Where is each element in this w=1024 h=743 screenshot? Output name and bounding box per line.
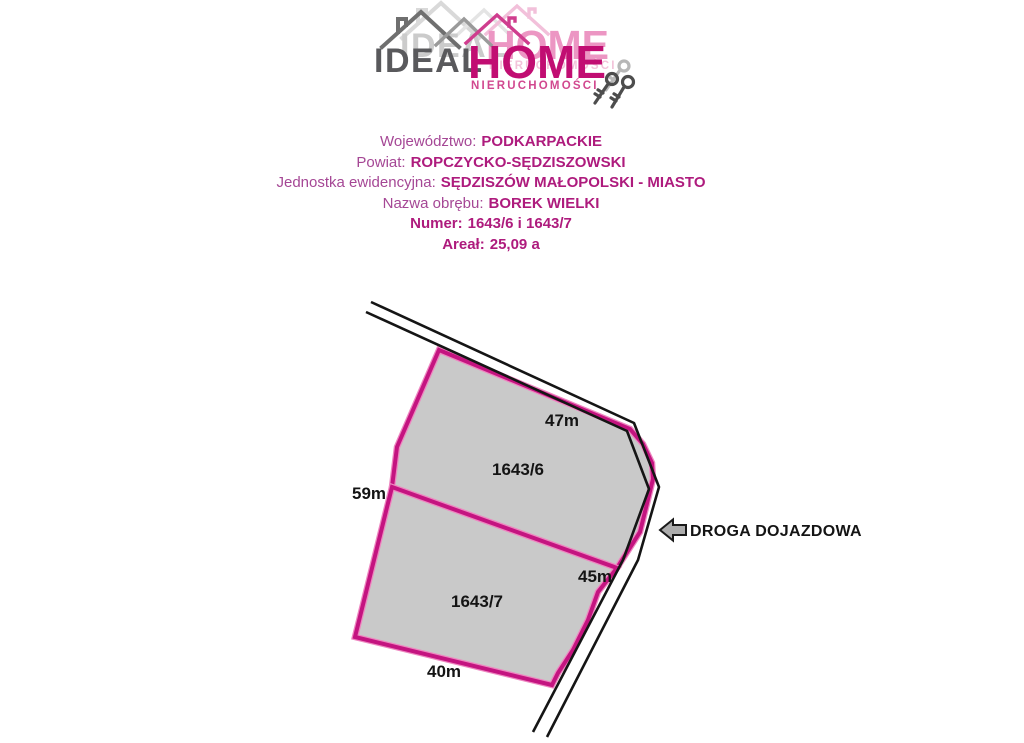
measurement-left: 59m — [352, 484, 386, 503]
measurement-bottom: 40m — [427, 662, 461, 681]
left-arrow-icon — [660, 520, 686, 541]
real-estate-flyer: IDEAL HOME NIERUCHOMOŚCI IDEAL HOME NIER… — [0, 0, 1024, 743]
parcel-1643-7-label: 1643/7 — [451, 592, 503, 611]
measurement-right: 45m — [578, 567, 612, 586]
measurement-top: 47m — [545, 411, 579, 430]
parcel-1643-6-label: 1643/6 — [492, 460, 544, 479]
parcel-map: 47m 1643/6 59m 45m 1643/7 40m DROGA DOJA… — [0, 0, 1024, 743]
road-label: DROGA DOJAZDOWA — [690, 523, 862, 540]
